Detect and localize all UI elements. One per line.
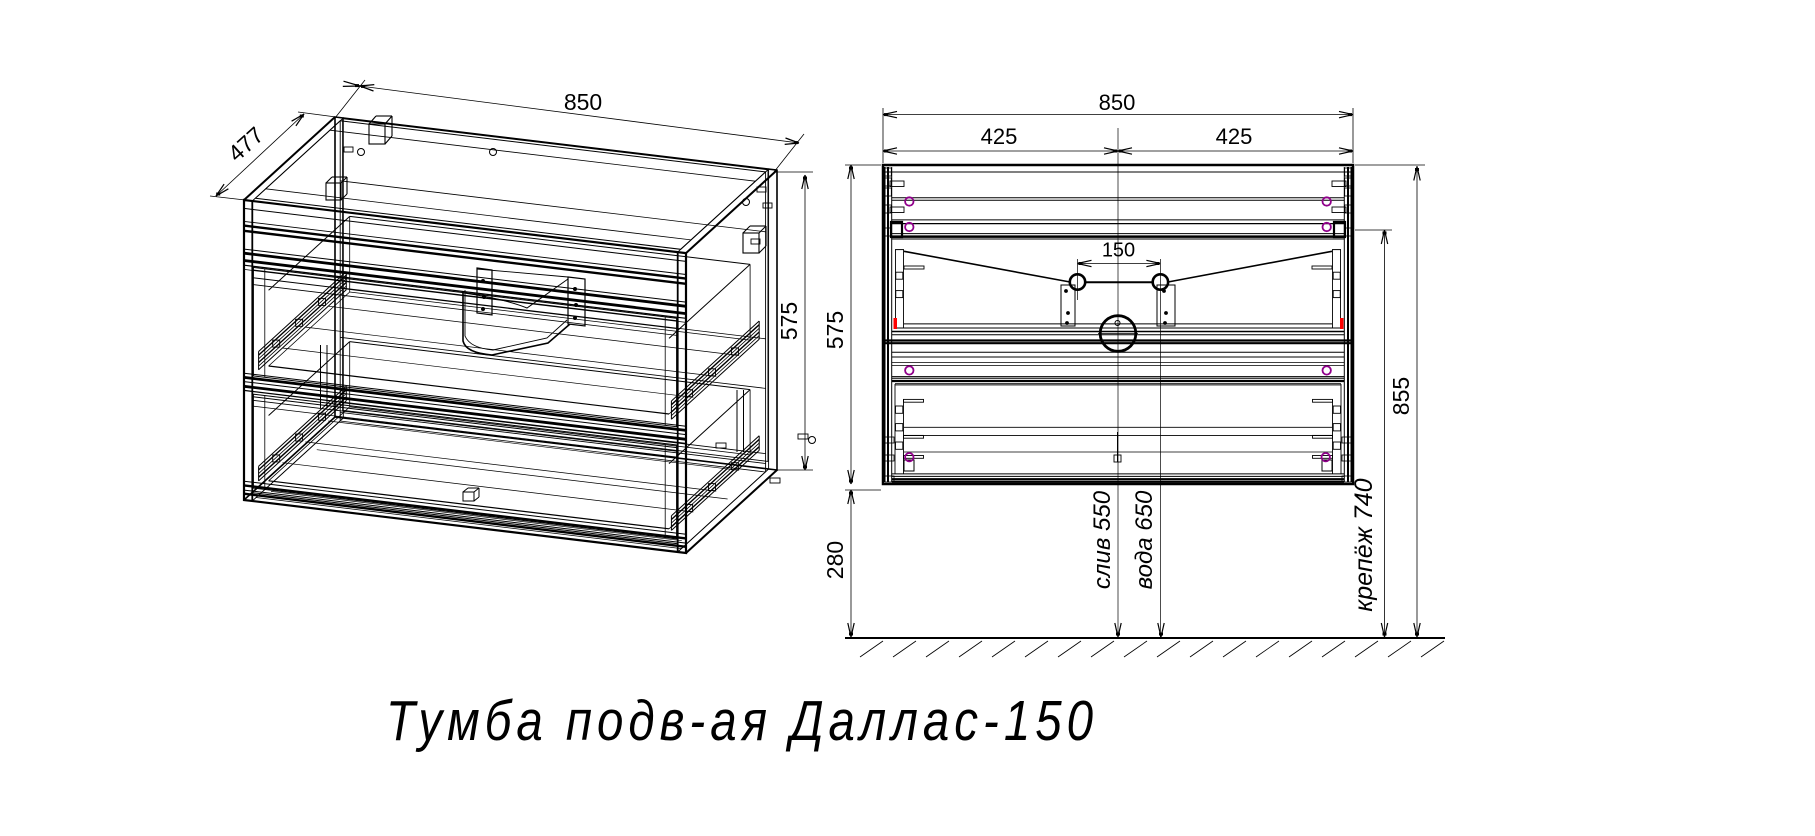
svg-text:слив 550: слив 550: [1089, 490, 1116, 589]
svg-text:крепёж 740: крепёж 740: [1350, 478, 1378, 611]
svg-text:575: 575: [822, 311, 848, 349]
svg-text:вода 650: вода 650: [1131, 490, 1158, 589]
svg-text:Тумба подв-ая Даллас-150: Тумба подв-ая Даллас-150: [386, 689, 1098, 753]
svg-text:850: 850: [564, 89, 602, 115]
svg-text:855: 855: [1388, 377, 1414, 415]
svg-text:280: 280: [822, 541, 848, 579]
svg-text:575: 575: [776, 302, 802, 340]
svg-text:425: 425: [1216, 124, 1253, 149]
svg-text:850: 850: [1099, 90, 1136, 115]
svg-text:425: 425: [981, 124, 1018, 149]
svg-text:150: 150: [1102, 240, 1135, 262]
